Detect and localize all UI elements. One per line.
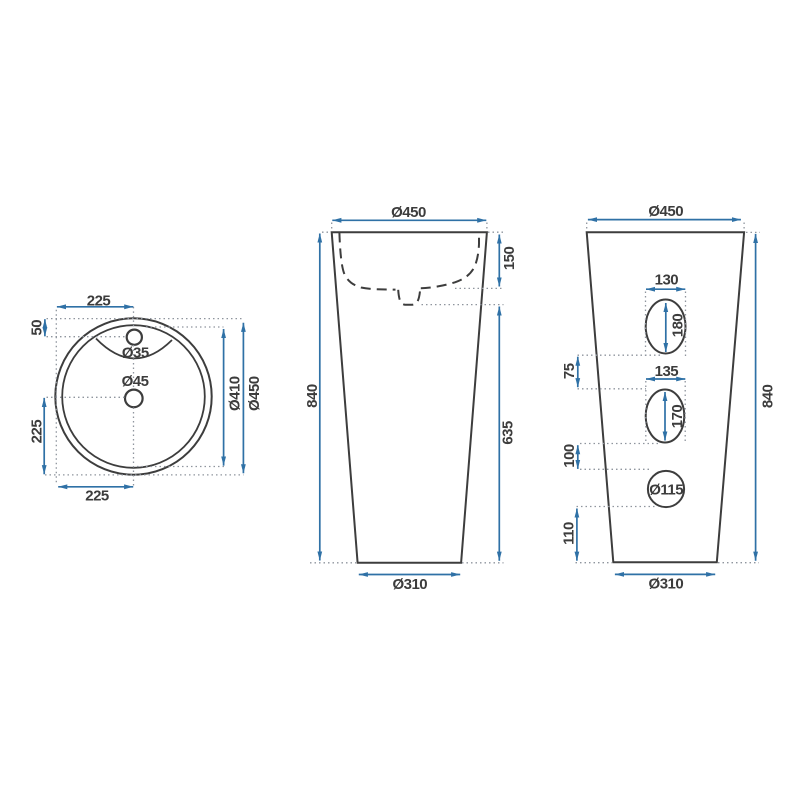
svg-text:170: 170 (669, 405, 686, 429)
svg-text:110: 110 (561, 522, 578, 545)
svg-text:Ø310: Ø310 (392, 576, 427, 593)
svg-text:135: 135 (655, 363, 679, 380)
svg-text:635: 635 (500, 421, 517, 445)
svg-text:150: 150 (501, 246, 518, 270)
svg-text:180: 180 (669, 314, 686, 338)
svg-text:Ø310: Ø310 (649, 576, 684, 593)
svg-text:Ø410: Ø410 (227, 376, 244, 411)
svg-text:Ø115: Ø115 (649, 482, 683, 499)
svg-text:225: 225 (85, 488, 109, 505)
svg-text:75: 75 (561, 363, 578, 379)
svg-text:225: 225 (29, 420, 46, 444)
svg-text:100: 100 (561, 444, 578, 468)
svg-text:Ø45: Ø45 (122, 373, 149, 390)
svg-text:Ø35: Ø35 (122, 345, 149, 362)
svg-text:840: 840 (759, 384, 776, 408)
svg-text:Ø450: Ø450 (648, 203, 683, 220)
svg-text:225: 225 (87, 293, 111, 310)
svg-text:50: 50 (29, 320, 46, 336)
svg-text:840: 840 (304, 384, 321, 408)
svg-text:130: 130 (655, 271, 679, 288)
svg-text:Ø450: Ø450 (391, 204, 426, 221)
svg-text:Ø450: Ø450 (246, 376, 263, 411)
